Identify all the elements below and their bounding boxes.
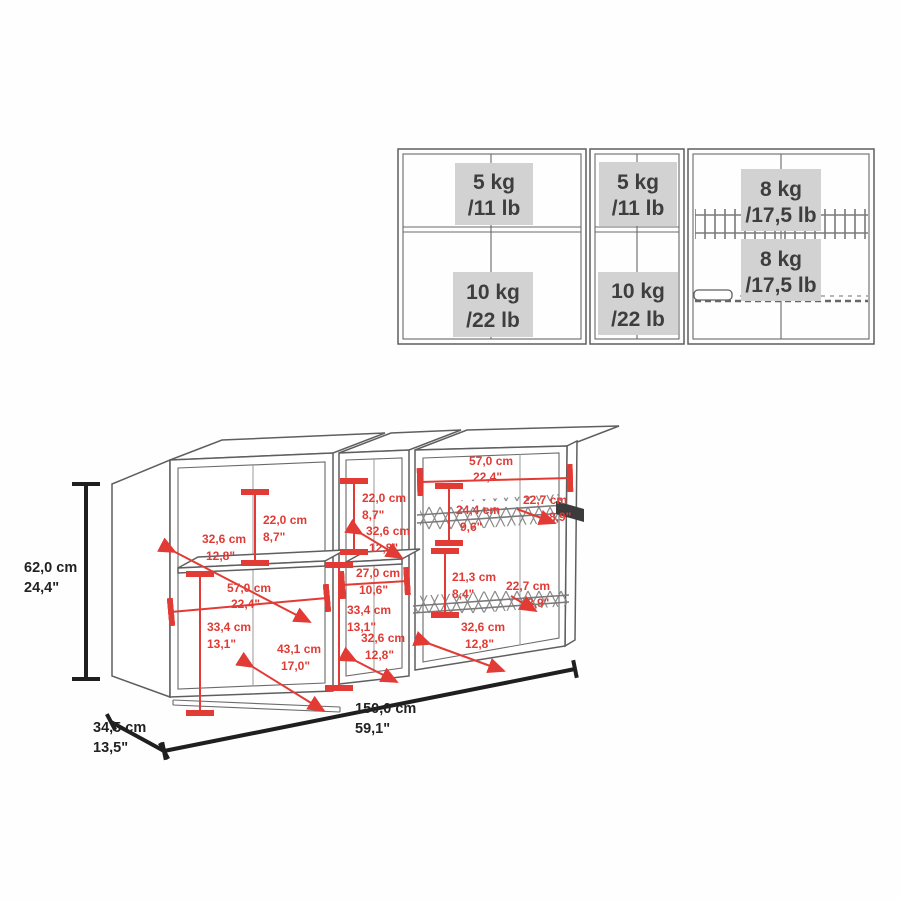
- load-label-kg: 5 kg: [617, 171, 659, 194]
- dim-c-rack-gap-in: 8,4": [452, 587, 474, 601]
- dim-b-shelf-depth-cm: 32,6 cm: [366, 524, 410, 538]
- dim-a-width-in: 22,4": [231, 597, 260, 611]
- dim-c-rack-gap-cm: 21,3 cm: [452, 570, 496, 584]
- dim-a-shelf-depth-in: 12,8": [206, 549, 235, 563]
- dim-c-width-in: 22,4": [473, 470, 502, 484]
- load-label-lb: /17,5 lb: [745, 204, 816, 227]
- dim-a-top-height-cm: 22,0 cm: [263, 513, 307, 527]
- dim-c-bottom-rack-depth-cm: 22,7 cm: [506, 579, 550, 593]
- dim-b-bottom-depth-in: 12,8": [365, 648, 394, 662]
- dimension-diagram: 62,0 cm 24,4" 34,5 cm 13,5" 150,0 cm 59,…: [24, 426, 619, 760]
- load-label-kg: 8 kg: [760, 248, 802, 271]
- dim-a-bottom-depth-in: 17,0": [281, 659, 310, 673]
- overall-width-cm: 150,0 cm: [355, 701, 416, 717]
- dim-c-width-cm: 57,0 cm: [469, 454, 513, 468]
- rack-tray: [694, 290, 732, 300]
- load-label-lb: /11 lb: [468, 197, 521, 220]
- overall-depth-in: 13,5": [93, 740, 128, 756]
- dim-a-bottom-height-cm: 33,4 cm: [207, 620, 251, 634]
- load-capacity-diagram: 5 kg /11 lb 10 kg /22 lb 5 kg /11 lb 10 …: [398, 149, 874, 344]
- dimension-end-cap: [162, 742, 166, 760]
- dim-c-top-rack-drop-cm: 24,4 cm: [456, 503, 500, 517]
- load-label-lb: /22 lb: [466, 309, 520, 332]
- load-section-middle: 5 kg /11 lb 10 kg /22 lb: [590, 149, 684, 344]
- overall-width-in: 59,1": [355, 721, 390, 737]
- dim-b-width-in: 10,6": [359, 583, 388, 597]
- product-diagram-page: 5 kg /11 lb 10 kg /22 lb 5 kg /11 lb 10 …: [0, 0, 900, 900]
- dim-b-top-height-in: 8,7": [362, 508, 384, 522]
- dim-b-top-height-cm: 22,0 cm: [362, 491, 406, 505]
- load-section-left: 5 kg /11 lb 10 kg /22 lb: [398, 149, 586, 344]
- dim-a-top-height-in: 8,7": [263, 530, 285, 544]
- dim-a-shelf-depth-cm: 32,6 cm: [202, 532, 246, 546]
- left-side-panel: [112, 460, 170, 697]
- dim-a-bottom-depth-cm: 43,1 cm: [277, 642, 321, 656]
- dim-c-top-rack-drop-in: 9,6": [460, 520, 482, 534]
- dim-b-bottom-height-cm: 33,4 cm: [347, 603, 391, 617]
- dim-c-bottom-depth-in: 12,8": [465, 637, 494, 651]
- load-label-lb: /22 lb: [611, 308, 665, 331]
- load-section-right: 8 kg /17,5 lb 8 kg /17,5 lb: [688, 149, 874, 344]
- load-label-kg: 5 kg: [473, 171, 515, 194]
- load-label-kg: 10 kg: [611, 280, 665, 303]
- dim-c-top-rack-depth-cm: 22,7 cm: [523, 493, 567, 507]
- load-label-kg: 8 kg: [760, 178, 802, 201]
- overall-height-cm: 62,0 cm: [24, 560, 77, 576]
- diagram-canvas: 5 kg /11 lb 10 kg /22 lb 5 kg /11 lb 10 …: [0, 0, 900, 900]
- dim-b-bottom-depth-cm: 32,6 cm: [361, 631, 405, 645]
- load-label-kg: 10 kg: [466, 281, 520, 304]
- dim-c-bottom-depth-cm: 32,6 cm: [461, 620, 505, 634]
- dim-a-width-cm: 57,0 cm: [227, 581, 271, 595]
- overall-depth-cm: 34,5 cm: [93, 720, 146, 736]
- dim-b-width-cm: 27,0 cm: [356, 566, 400, 580]
- overall-height-in: 24,4": [24, 580, 59, 596]
- dim-a-bottom-height-in: 13,1": [207, 637, 236, 651]
- top-face-right: [415, 426, 619, 450]
- dimension-end-cap: [573, 660, 577, 678]
- load-label-lb: /11 lb: [612, 197, 665, 220]
- load-label-lb: /17,5 lb: [745, 274, 816, 297]
